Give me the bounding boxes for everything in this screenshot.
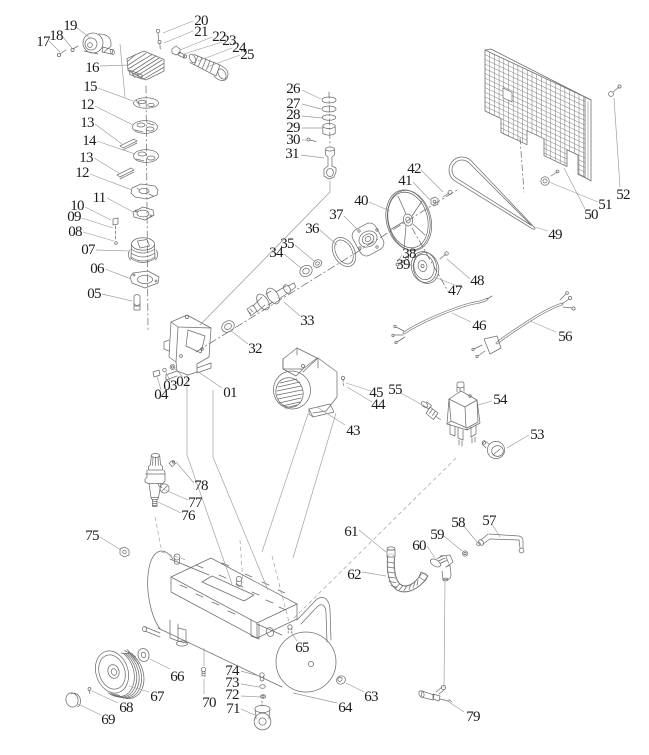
svg-text:67: 67 xyxy=(150,689,165,705)
svg-text:14: 14 xyxy=(82,133,97,149)
svg-text:26: 26 xyxy=(286,81,301,97)
svg-text:06: 06 xyxy=(90,261,105,277)
svg-text:56: 56 xyxy=(558,329,573,345)
svg-text:68: 68 xyxy=(119,700,133,716)
svg-text:13: 13 xyxy=(79,150,93,166)
svg-text:36: 36 xyxy=(305,221,320,237)
svg-text:65: 65 xyxy=(295,640,309,656)
svg-text:33: 33 xyxy=(300,313,314,329)
svg-text:79: 79 xyxy=(466,709,480,725)
svg-text:58: 58 xyxy=(451,515,465,531)
svg-text:37: 37 xyxy=(329,207,344,223)
svg-text:71: 71 xyxy=(226,701,240,717)
svg-text:40: 40 xyxy=(354,193,368,209)
svg-text:47: 47 xyxy=(448,283,463,299)
svg-text:69: 69 xyxy=(101,712,115,728)
svg-text:04: 04 xyxy=(154,387,169,403)
svg-text:74: 74 xyxy=(225,663,240,679)
svg-text:60: 60 xyxy=(412,538,426,554)
svg-text:62: 62 xyxy=(347,567,361,583)
svg-text:51: 51 xyxy=(598,197,612,213)
svg-text:70: 70 xyxy=(202,695,216,711)
svg-text:07: 07 xyxy=(81,242,96,258)
svg-text:21: 21 xyxy=(194,24,208,40)
svg-text:12: 12 xyxy=(75,165,89,181)
svg-text:43: 43 xyxy=(346,423,360,439)
svg-text:08: 08 xyxy=(68,224,82,240)
svg-text:05: 05 xyxy=(87,286,101,302)
svg-text:19: 19 xyxy=(63,18,77,34)
svg-text:77: 77 xyxy=(188,495,203,511)
svg-text:16: 16 xyxy=(85,60,100,76)
svg-text:52: 52 xyxy=(616,187,630,203)
svg-text:57: 57 xyxy=(482,513,497,529)
svg-text:61: 61 xyxy=(344,524,358,540)
svg-text:48: 48 xyxy=(470,273,484,289)
svg-text:50: 50 xyxy=(584,207,598,223)
svg-text:46: 46 xyxy=(472,318,487,334)
svg-text:15: 15 xyxy=(83,79,97,95)
svg-text:13: 13 xyxy=(80,115,94,131)
svg-text:18: 18 xyxy=(49,28,63,44)
svg-text:12: 12 xyxy=(80,97,94,113)
svg-text:78: 78 xyxy=(194,478,208,494)
svg-text:01: 01 xyxy=(223,385,237,401)
svg-text:63: 63 xyxy=(364,689,378,705)
svg-text:75: 75 xyxy=(85,528,99,544)
svg-text:32: 32 xyxy=(248,341,262,357)
svg-text:66: 66 xyxy=(170,669,185,685)
svg-text:59: 59 xyxy=(430,527,444,543)
svg-text:39: 39 xyxy=(396,257,410,273)
svg-text:11: 11 xyxy=(93,190,106,206)
svg-text:09: 09 xyxy=(67,209,81,225)
svg-text:42: 42 xyxy=(407,161,421,177)
svg-text:35: 35 xyxy=(280,236,294,252)
svg-text:54: 54 xyxy=(493,392,508,408)
svg-text:53: 53 xyxy=(530,427,544,443)
svg-text:02: 02 xyxy=(176,374,190,390)
svg-text:31: 31 xyxy=(285,146,299,162)
svg-text:17: 17 xyxy=(36,34,51,50)
svg-text:55: 55 xyxy=(388,382,402,398)
svg-text:49: 49 xyxy=(548,227,562,243)
svg-text:25: 25 xyxy=(240,47,254,63)
svg-text:45: 45 xyxy=(369,385,383,401)
svg-text:64: 64 xyxy=(338,700,353,716)
